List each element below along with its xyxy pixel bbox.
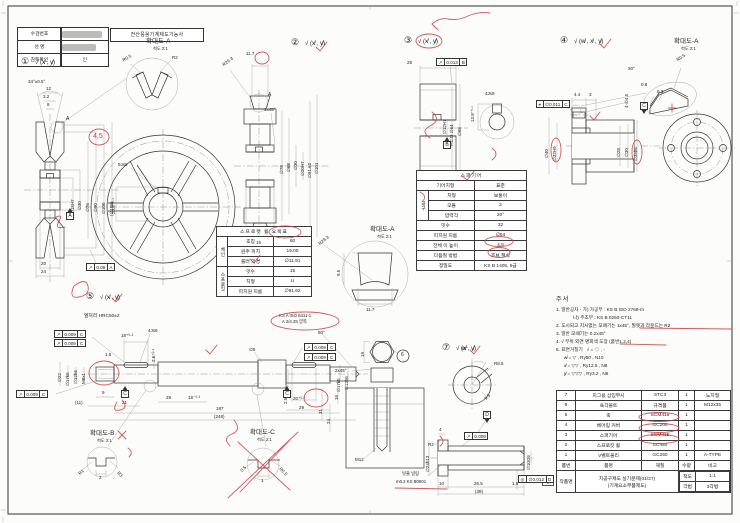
parts-cell: M12x35 — [695, 401, 731, 411]
spec-label: 잇수 — [228, 267, 274, 277]
detail-a-sprocket-tooth — [320, 241, 408, 307]
gdt-frame: ↗0.009 — [464, 432, 488, 440]
dim-label: 척도 2:1 — [153, 47, 168, 52]
detail-a-cover-edge — [640, 68, 700, 121]
gdt-frame: ↗0.009C — [16, 390, 48, 398]
dim-label: 1x45° — [264, 108, 276, 113]
parts-cell: 스프로킷 휠 — [576, 441, 642, 451]
spec-label: 치형 — [429, 191, 475, 201]
dim-label: ∅12H7 — [443, 119, 448, 134]
dim-label: √ (x̸ , y̸) — [35, 60, 55, 67]
dim-label: 90° — [318, 331, 325, 336]
dim-label: ∅24h13 — [426, 456, 431, 472]
parts-header: 재질 — [642, 461, 679, 471]
scale-value: 1:1 — [696, 472, 730, 482]
spec-value: 표준 — [475, 181, 527, 191]
dim-label: ∅76 — [86, 203, 91, 212]
datum-flag-d: D — [483, 411, 491, 419]
sprocket-group: 스프로킷 — [217, 267, 228, 297]
dim-label: 척도 2:1 — [681, 47, 696, 52]
detail-c — [244, 448, 280, 480]
spec-value: U — [274, 277, 312, 287]
sprocket-table-title: 스프로켓 휠 요목표 — [217, 227, 312, 237]
detail-b — [82, 447, 118, 477]
gear-table-title: 스퍼기어 — [417, 171, 527, 181]
note-line: 1. 일반공차 - 가) 가공부 : KS B ISO 2768-m — [556, 306, 734, 314]
dim-label: ∅68 — [458, 127, 463, 136]
dim-label: 확대도-B — [90, 430, 114, 437]
dim-label: 3.2 — [43, 95, 49, 100]
dim-label: 0.8 — [641, 83, 647, 88]
parts-cell: GC250 — [642, 451, 679, 461]
parts-cell: SCM415 — [642, 411, 679, 421]
dim-label: ∅101 — [315, 163, 320, 174]
parts-header: 품명 — [576, 461, 642, 471]
dim-label: ∅10G6 — [527, 455, 532, 470]
work-title-cell: 치공구제도 실기문제(01/27)(기계요소부품제도) — [576, 471, 679, 493]
dim-label: 15 — [256, 241, 261, 246]
spec-label: 기어치형 — [417, 181, 475, 191]
drawing-sheet: 수검번호성 명감독확인인 전산응용기계제도기능사 스프로켓 휠 요목표체인호칭6… — [0, 0, 740, 523]
dim-label: ∅100 — [102, 203, 107, 214]
spec-label: 피치원 지름 — [228, 287, 274, 297]
dim-label: M8x1 — [82, 373, 87, 384]
dim-label: ∅32H9 — [553, 146, 558, 161]
spec-value: ∅11.91 — [274, 257, 312, 267]
notes-title: 주서 — [556, 294, 734, 303]
parts-cell: 4 — [557, 421, 576, 431]
parts-cell: 2 — [557, 441, 576, 451]
dim-label: ⑦ — [442, 343, 450, 353]
datum-flag-c: C — [283, 390, 291, 398]
dim-label: R2 — [172, 56, 178, 61]
sprocket-spec-table: 스프로켓 휠 요목표체인호칭60원주 피치19.05롤러 외경∅11.91스프로… — [216, 226, 312, 297]
work-subtitle: (기계요소부품제도) — [577, 482, 677, 489]
dim-label: 30° — [461, 347, 468, 352]
parts-header: 수량 — [679, 461, 695, 471]
view6-hex-bolt — [322, 342, 424, 468]
dim-label: (38) — [475, 490, 483, 495]
gdt-frame: ⌖∅0.011C — [536, 100, 570, 108]
spec-label: 호칭 — [228, 237, 274, 247]
parts-cell — [695, 431, 731, 441]
dim-label: (248) — [214, 415, 225, 420]
spec-value: KS B 1405, 5급 — [475, 261, 527, 271]
spec-value: 보통이 — [475, 191, 527, 201]
parts-cell: 1 — [679, 441, 695, 451]
dim-label: A — [268, 93, 271, 99]
parts-cell: V벨트풀리 — [576, 451, 642, 461]
dim-label: 열처리 HRC50±2 — [84, 314, 120, 319]
dim-label: 4,5 — [93, 133, 103, 141]
view1-vbelt-pulley — [24, 78, 127, 282]
parts-cell — [695, 411, 731, 421]
spec-value: 4.5 — [475, 241, 527, 251]
note-line: 2. 도시되고 지시없는 모떼기는 1x45°, 필렛과 라운드는 R2 — [556, 322, 734, 330]
dim-label: ④ — [560, 36, 568, 46]
dim-label: 2.5⁺⁰·¹ — [152, 349, 157, 362]
dim-label: 18⁺⁰·² — [121, 334, 133, 339]
dim-label: 확대도-A — [674, 38, 698, 45]
parts-cell: A-TYPE — [695, 451, 731, 461]
spec-value: ∅64 — [475, 231, 527, 241]
note-line: w̸ = ▽ , Ry50 , N10 — [556, 354, 734, 362]
parts-cell: GC200 — [642, 421, 679, 431]
spec-label: 잇수 — [417, 221, 475, 231]
dim-label: √ (x̸ , y̸) — [418, 39, 438, 46]
dim-label: ∅22 — [58, 373, 63, 382]
gdt-frame: ↗0.009C — [54, 339, 86, 347]
parts-header: 비고 — [695, 461, 731, 471]
dim-label: 9.5 — [337, 270, 342, 276]
dim-label: 18⁻⁰·² — [188, 396, 200, 401]
parts-cell: 육각볼트 — [576, 401, 642, 411]
dim-label: A — [66, 117, 69, 123]
dim-label: A 2/4.25 양쪽 — [282, 320, 307, 325]
spec-label: 정밀도 — [417, 261, 475, 271]
dim-label: 24 — [41, 270, 46, 275]
spec-label: 치형 — [228, 277, 274, 287]
spec-label: 모듈 — [429, 201, 475, 211]
parts-cell: 1 — [679, 431, 695, 441]
gdt-frame: ↗0.009C — [304, 353, 336, 361]
dim-label: 28 — [407, 61, 412, 66]
dim-label: M12 — [355, 458, 364, 463]
redacted-name — [62, 44, 96, 51]
datum-flag-b: B — [443, 141, 451, 149]
titleblock-label: 성 명 — [17, 40, 61, 54]
dim-label: ∅17k5 — [337, 378, 342, 392]
note-line: y̸ = ▽▽▽ , Ry3.2 , N6 — [556, 370, 734, 378]
dim-label: 26.5 — [474, 482, 483, 487]
dim-label: 29 — [166, 396, 171, 401]
datum-flag-c: C — [121, 390, 129, 398]
dim-label: 20 — [41, 262, 46, 267]
dim-label: ① — [21, 57, 29, 67]
dim-label: ∅35h6 — [634, 147, 639, 161]
dim-label: ∅17k5 — [66, 372, 71, 386]
dim-label: 4 — [439, 428, 442, 433]
gdt-frame: ◎∅0.012D — [518, 475, 554, 483]
parts-cell: 1 — [679, 401, 695, 411]
scale-label: 각법 — [680, 482, 696, 492]
parts-header: 품번 — [557, 461, 576, 471]
dim-label: 8 — [47, 103, 50, 108]
dim-label: 31 — [319, 409, 324, 414]
spec-value: 2 — [475, 201, 527, 211]
dim-label: 9 — [102, 391, 105, 396]
spec-label: 다듬질 방법 — [417, 251, 475, 261]
spec-value: 호브 절삭 — [475, 251, 527, 261]
dim-label: m0.2 KS B0901 — [396, 480, 426, 485]
dim-label: 4Js9 — [148, 329, 158, 334]
dim-label: ∅30 — [625, 148, 630, 157]
scale-value: 3각법 — [696, 482, 730, 492]
dim-label: 확대도-A — [370, 226, 394, 233]
parts-cell — [695, 421, 731, 431]
gear-spec-table: 스퍼기어기어치형표준공구치형보통이모듈2압력각20°잇수32피치원 지름∅64전… — [416, 170, 527, 271]
spec-value: 32 — [475, 221, 527, 231]
dim-label: 4-∅4.5 — [625, 94, 630, 108]
note-line: 5. 표면거칠기 √ = ◇ , - — [556, 346, 734, 354]
datum-flag-c: C — [640, 102, 648, 110]
dim-label: 빗줄 널링 — [402, 472, 419, 477]
dim-label: 4Js9 — [485, 92, 495, 97]
dim-label: KS A ISO 6411-1 — [279, 314, 311, 319]
dim-label: 24 — [327, 419, 332, 424]
parts-cell: 1 — [679, 411, 695, 421]
dim-label: 11.7 — [366, 308, 374, 313]
spec-value: 15 — [274, 267, 312, 277]
dim-label: ∅30 — [78, 201, 83, 210]
spec-value: 60 — [274, 237, 312, 247]
parts-cell: 3 — [557, 431, 576, 441]
parts-list-table: 7지그용 삽입부시STC31노치형6육각볼트규격품1M12x355축SCM415… — [556, 390, 731, 493]
dim-label: 확대도-C — [250, 429, 275, 436]
work-title: 치공구제도 실기문제(01/27) — [577, 475, 677, 482]
dim-label: ∅5 — [249, 348, 255, 353]
gdt-frame: ↗0.009C — [54, 330, 86, 338]
scale-label: 척도 — [680, 472, 696, 482]
dim-label: ⑤ — [86, 292, 94, 302]
note-line: x̸ = ▽▽ , Ry12.5 , N8 — [556, 362, 734, 370]
note-line: 나) 주조부 : KS B 0250-CT11 — [556, 314, 734, 322]
parts-cell: 5 — [557, 411, 576, 421]
dim-label: ② — [291, 38, 299, 48]
view4-cover-front — [659, 110, 735, 186]
parts-cell: 축 — [576, 411, 642, 421]
dim-label: ③ — [404, 36, 412, 46]
spec-value: ∅91.62 — [274, 287, 312, 297]
dim-label: 4.4 — [574, 93, 580, 98]
dim-label: ∅20H7 — [301, 161, 306, 176]
dim-label: 척도 2:1 — [377, 235, 392, 240]
dim-label: 10 — [439, 482, 444, 487]
parts-cell: 7 — [557, 391, 576, 401]
notes-block: 주서 1. 일반공차 - 가) 가공부 : KS B ISO 2768-m 나)… — [556, 294, 734, 378]
dim-label: 20.8⁺⁰·¹ — [112, 198, 117, 214]
dim-label: ∅90 — [94, 203, 99, 212]
spec-label: 원주 피치 — [228, 247, 274, 257]
parts-cell — [695, 441, 731, 451]
dim-label: 187 — [216, 407, 224, 412]
dim-label: ∅28 — [617, 148, 622, 157]
parts-cell: 베어링 커버 — [576, 421, 642, 431]
dim-label: √ (x̸ , y̸) — [100, 295, 120, 302]
spec-value: 19.05 — [274, 247, 312, 257]
note-line: 3. 일반 모떼기는 0.2x45° — [556, 330, 734, 338]
dim-label: 2 — [99, 476, 102, 481]
parts-cell: 1 — [679, 451, 695, 461]
dim-label: 6 — [401, 353, 404, 359]
dim-label: 29 — [299, 406, 304, 411]
parts-cell: 규격품 — [642, 401, 679, 411]
dim-label: 19 — [361, 352, 366, 357]
view3-spur-gear — [414, 66, 514, 172]
gdt-frame: ↗0.013B — [436, 58, 467, 66]
dim-label: 30° — [628, 67, 635, 72]
work-title-label: 작품명 — [557, 471, 576, 493]
dim-label: 6.3 — [657, 90, 663, 95]
dim-label: ∅12h6 — [74, 370, 79, 384]
dim-label: (11) — [75, 401, 83, 406]
dim-label: ∅40 — [545, 149, 550, 158]
parts-cell: 노치형 — [695, 391, 731, 401]
dim-label: 1 — [261, 479, 264, 484]
redacted-exam-number — [62, 31, 102, 38]
dim-label: 20⁺⁰·² — [293, 397, 305, 402]
dim-label: 척도 2:1 — [257, 438, 272, 443]
gdt-frame: ↗0.009C — [304, 343, 336, 351]
gear-group: 공구 — [417, 191, 429, 221]
parts-cell: 스퍼기어 — [576, 431, 642, 441]
dim-label: 1.5 — [105, 353, 111, 358]
dim-label: √ (x̸ , y̸) — [305, 41, 325, 48]
sprocket-group: 체인 — [217, 237, 228, 267]
note-line: 4. √ 부위 외면 명회색 도장 (품번1,2,4) — [556, 338, 734, 346]
parts-cell: SCM415 — [642, 431, 679, 441]
parts-cell: SC450 — [642, 441, 679, 451]
dim-label: R2 — [428, 443, 434, 448]
parts-cell: 1 — [557, 451, 576, 461]
dim-label: 11.7 — [246, 52, 254, 57]
dim-label: 12 — [46, 87, 51, 92]
dim-label: ∅68 — [287, 163, 292, 172]
spec-label: 압력각 — [429, 211, 475, 221]
dim-label: √ (w̸ , x̸ , y̸) — [574, 39, 603, 46]
detail-a-pulley-groove — [126, 58, 178, 110]
spec-label: 롤러 외경 — [228, 257, 274, 267]
dim-label: ∅91.62 — [308, 163, 313, 178]
parts-cell: 6 — [557, 401, 576, 411]
parts-cell: STC3 — [642, 391, 679, 401]
dim-label: 3 — [589, 93, 592, 98]
parts-cell: 1 — [679, 421, 695, 431]
datum-flag-a: A — [66, 212, 74, 220]
titleblock-value: 인 — [61, 53, 109, 67]
dim-label: R8.5 — [494, 362, 504, 367]
gdt-frame: ↗0.05A — [86, 263, 115, 271]
spec-label: 전체 이 높이 — [417, 241, 475, 251]
parts-cell: 지그용 삽입부시 — [576, 391, 642, 401]
dim-label: 척도 2:1 — [97, 439, 112, 444]
dim-label: 16 — [335, 395, 340, 400]
dim-label: 21 — [122, 401, 127, 406]
spec-value: 20° — [475, 211, 527, 221]
dim-label: 2x45° — [335, 369, 347, 374]
dim-label: 5Js9 — [118, 163, 128, 168]
dim-label: ∅30 — [294, 161, 299, 170]
dim-label: ∅12h6 — [345, 376, 350, 390]
dim-label: 13.8⁺⁰·¹ — [471, 106, 476, 122]
dim-label: 확대도-A — [146, 38, 170, 45]
dim-label: 34°±0.5° — [28, 80, 45, 85]
view2-sprocket-section — [230, 64, 330, 246]
spec-label: 피치원 지름 — [417, 231, 475, 241]
titleblock-label: 수검번호 — [17, 27, 61, 41]
parts-cell: 1 — [679, 391, 695, 401]
dim-label: ∅78 — [280, 165, 285, 174]
